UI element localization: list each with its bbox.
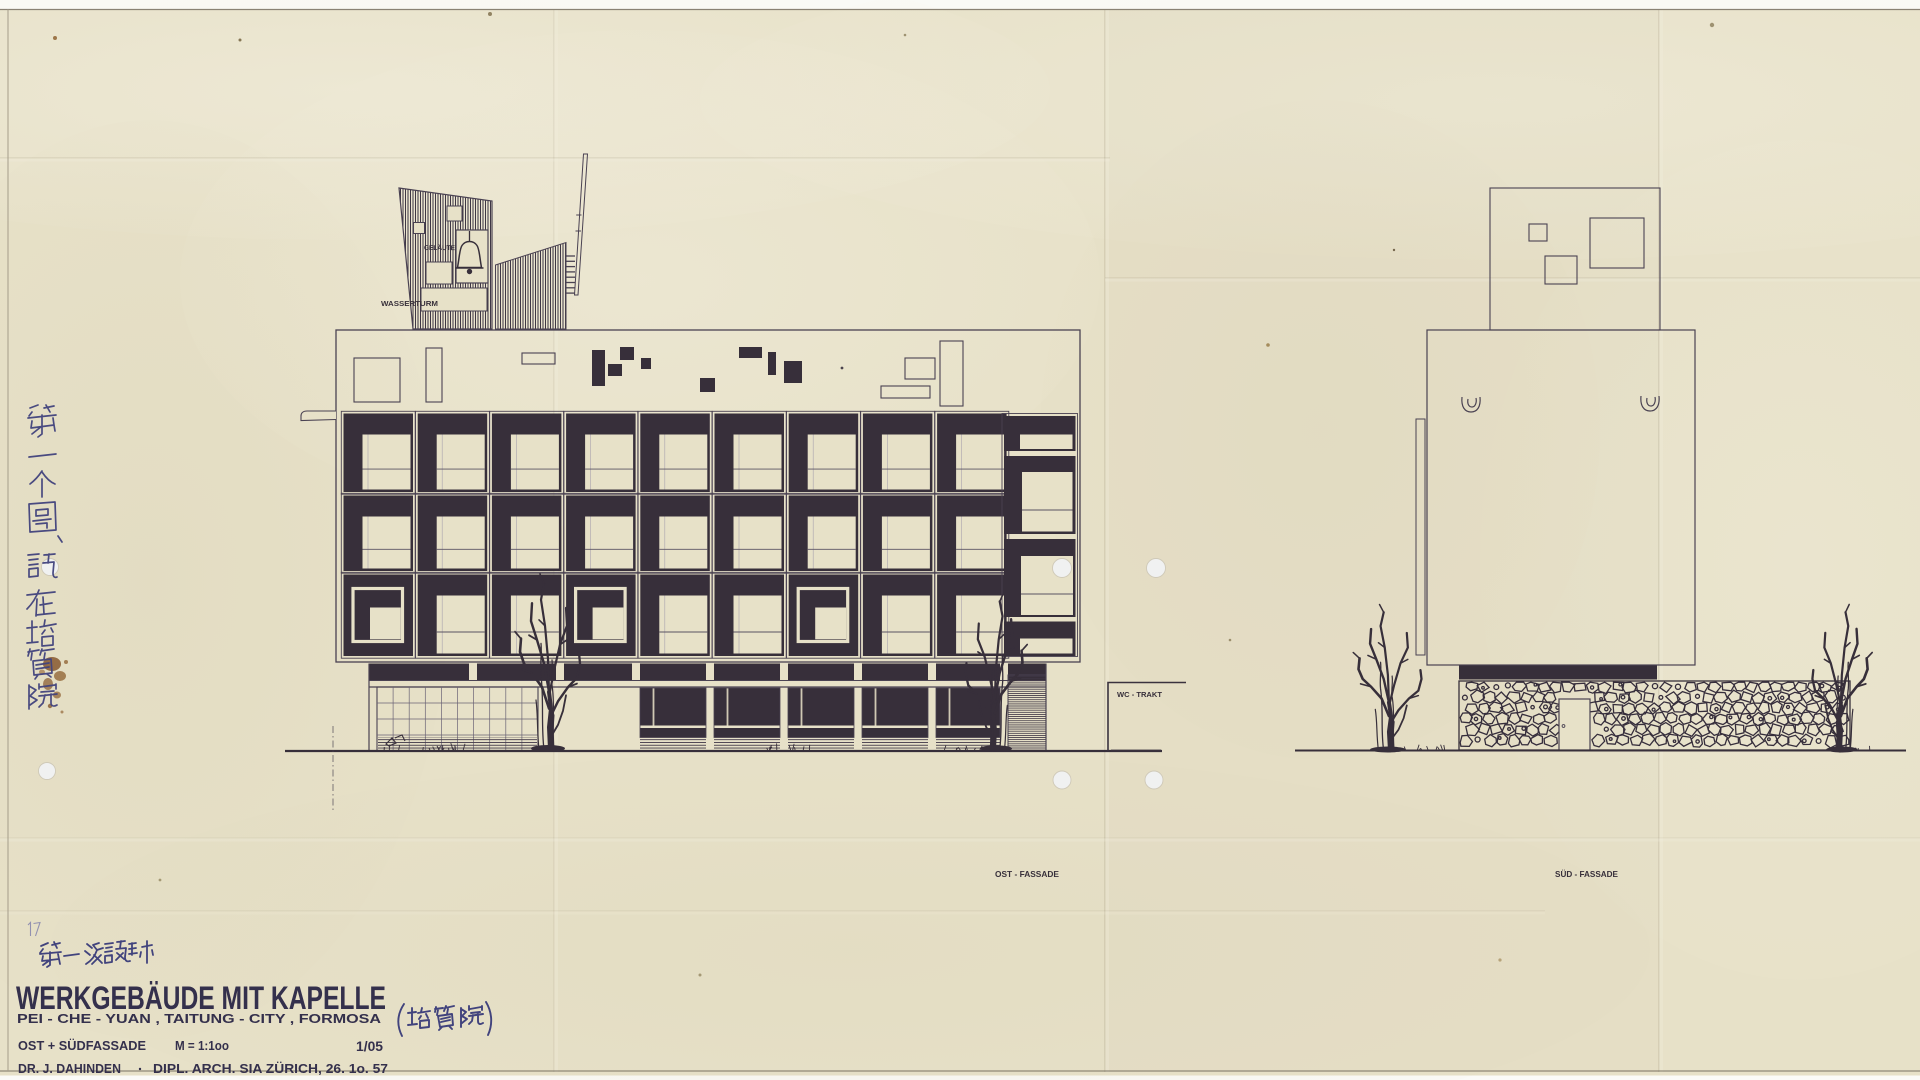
svg-text:M = 1:1oo: M = 1:1oo <box>175 1038 229 1053</box>
svg-text:WERKGEBÄUDE MIT KAPELLE: WERKGEBÄUDE MIT KAPELLE <box>16 980 386 1016</box>
svg-text:DR. J. DAHINDEN: DR. J. DAHINDEN <box>18 1061 121 1076</box>
svg-text:SÜD - FASSADE: SÜD - FASSADE <box>1555 869 1618 879</box>
svg-text:GELÄUTE: GELÄUTE <box>424 244 455 252</box>
svg-text:DIPL. ARCH. SIA ZÜRICH, 26. 1: DIPL. ARCH. SIA ZÜRICH, 26. 1o. 57 <box>153 1061 388 1076</box>
svg-text:OST + SÜDFASSADE: OST + SÜDFASSADE <box>18 1038 146 1053</box>
svg-text:1/05: 1/05 <box>356 1039 383 1054</box>
svg-text:PEI - CHE - YUAN , TAITUNG - C: PEI - CHE - YUAN , TAITUNG - CITY , FORM… <box>17 1012 381 1026</box>
svg-text:WASSERTURM: WASSERTURM <box>381 301 438 308</box>
svg-text:WC - TRAKT: WC - TRAKT <box>1117 690 1162 699</box>
svg-text:OST - FASSADE: OST - FASSADE <box>995 869 1059 879</box>
